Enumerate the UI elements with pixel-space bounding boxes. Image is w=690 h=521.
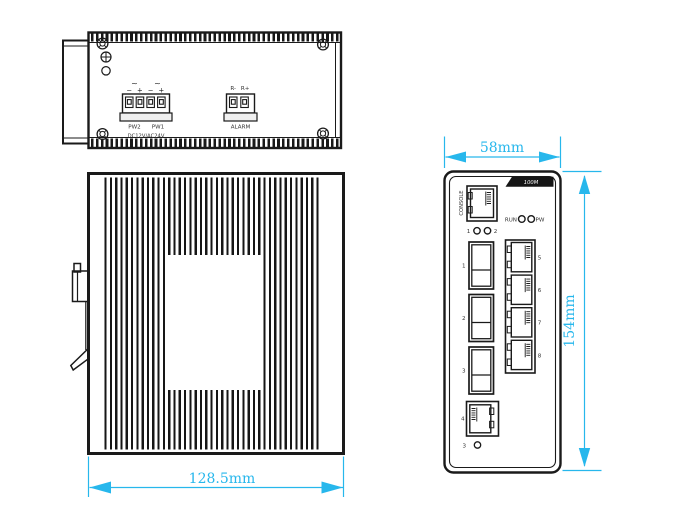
arrow-down-icon — [579, 448, 590, 467]
relay-neg-label: R- — [230, 86, 236, 92]
terminal-screw — [241, 97, 249, 108]
dimension-body-width: 128.5mm — [89, 457, 344, 498]
led1-label: 1 — [467, 229, 471, 235]
pw-label: PW — [536, 217, 545, 223]
dimension-label: 154mm — [562, 294, 578, 347]
sfp-1-label: 1 — [462, 264, 466, 270]
din-clip — [71, 264, 89, 371]
terminal-screw — [136, 97, 144, 108]
sfp-slot-1: 1 — [462, 242, 493, 289]
top-view: ~ ~ − + − + PW2 PW1 DC12V/AC24V R- R+ — [63, 33, 341, 149]
hole-icon — [102, 67, 110, 75]
terminal-screw — [147, 97, 155, 108]
relay-pos-label: R+ — [241, 86, 250, 92]
rj45-port-6: 6 — [507, 275, 541, 304]
sfp-3-label: 3 — [462, 369, 466, 375]
terminal-screw — [158, 97, 166, 108]
speed-badge-label: 100M — [524, 180, 539, 186]
sfp-2-label: 2 — [462, 316, 466, 322]
drawing-canvas: ~ ~ − + − + PW2 PW1 DC12V/AC24V R- R+ — [0, 0, 690, 521]
arrow-right-icon — [322, 482, 344, 494]
port-7-label: 7 — [538, 321, 542, 327]
arrow-left-icon — [90, 482, 112, 494]
arrow-up-icon — [579, 175, 590, 194]
arrow-left-icon — [446, 152, 467, 163]
dimension-drawing: ~ ~ − + − + PW2 PW1 DC12V/AC24V R- R+ — [0, 0, 690, 521]
port-8-label: 8 — [538, 353, 542, 359]
arrow-right-icon — [539, 152, 560, 163]
alarm-label: ALARM — [231, 125, 251, 131]
rj45-port-7: 7 — [507, 308, 541, 337]
dimension-label: 128.5mm — [189, 471, 256, 487]
power-terminal-block: ~ ~ − + − + PW2 PW1 DC12V/AC24V — [120, 79, 172, 140]
port-leds-1-2: 1 2 — [467, 228, 498, 235]
console-port — [467, 186, 497, 221]
dimension-front-width: 58mm — [445, 137, 561, 169]
console-label: CONSOLE — [459, 190, 465, 215]
mount-bracket — [63, 41, 89, 144]
terminal-screw — [230, 97, 238, 108]
led2-label: 2 — [494, 229, 498, 235]
pw1-label: PW1 — [152, 125, 165, 131]
led-2 — [484, 228, 490, 234]
led3-label: 3 — [463, 443, 467, 449]
rj45-port-4: 4 — [461, 402, 498, 437]
run-label: RUN — [505, 217, 517, 223]
power-rating-label: DC12V/AC24V — [128, 134, 165, 140]
led-1 — [474, 228, 480, 234]
pw-led — [528, 216, 535, 223]
side-view — [71, 174, 344, 454]
sfp-slot-3: 3 — [462, 347, 493, 394]
port-4-label: 4 — [461, 417, 465, 423]
label-area — [165, 255, 262, 390]
led-3 — [474, 442, 480, 448]
mount-bracket-edges — [63, 46, 89, 138]
rj45-port-5: 5 — [507, 243, 541, 272]
run-led — [519, 216, 526, 223]
dimension-label: 58mm — [480, 140, 524, 156]
front-view: 100M CONSOLE RUN PW 1 2 1 — [445, 172, 561, 473]
rj45-cage — [506, 240, 536, 373]
port-led-3: 3 — [463, 442, 481, 450]
port-5-label: 5 — [538, 256, 542, 262]
status-leds: RUN PW — [505, 216, 545, 224]
ground-screw-icon — [101, 52, 112, 63]
rj45-port-8: 8 — [507, 340, 541, 369]
alarm-terminal-block: R- R+ ALARM — [224, 86, 257, 131]
pw2-label: PW2 — [128, 125, 140, 131]
sfp-slot-2: 2 — [462, 295, 493, 342]
port-6-label: 6 — [538, 288, 542, 294]
dimension-front-height: 154mm — [562, 172, 602, 471]
terminal-screw — [126, 97, 134, 108]
